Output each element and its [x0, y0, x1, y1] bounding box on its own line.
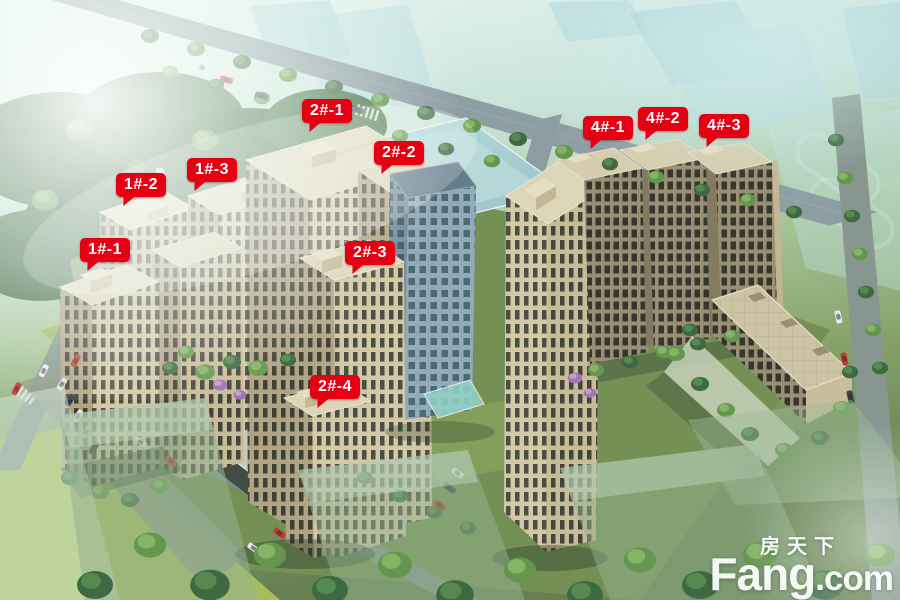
building-label-2-4[interactable]: 2#-4: [310, 375, 360, 399]
building-label-4-3[interactable]: 4#-3: [699, 114, 749, 138]
building-label-1-1[interactable]: 1#-1: [80, 238, 130, 262]
building-label-2-2[interactable]: 2#-2: [374, 141, 424, 165]
building-label-1-2[interactable]: 1#-2: [116, 173, 166, 197]
aerial-site-plan: 1#-11#-21#-32#-12#-22#-32#-44#-14#-24#-3…: [0, 0, 900, 600]
building-label-1-3[interactable]: 1#-3: [187, 158, 237, 182]
building-label-2-3[interactable]: 2#-3: [345, 241, 395, 265]
fangcom-watermark: 房天下 Fang.com: [709, 537, 893, 597]
rendering-canvas: [0, 0, 900, 600]
watermark-logo: Fang.com: [709, 551, 893, 597]
building-label-4-1[interactable]: 4#-1: [583, 116, 633, 140]
fog-overlays: [0, 0, 900, 600]
building-label-2-1[interactable]: 2#-1: [302, 99, 352, 123]
building-label-4-2[interactable]: 4#-2: [638, 107, 688, 131]
